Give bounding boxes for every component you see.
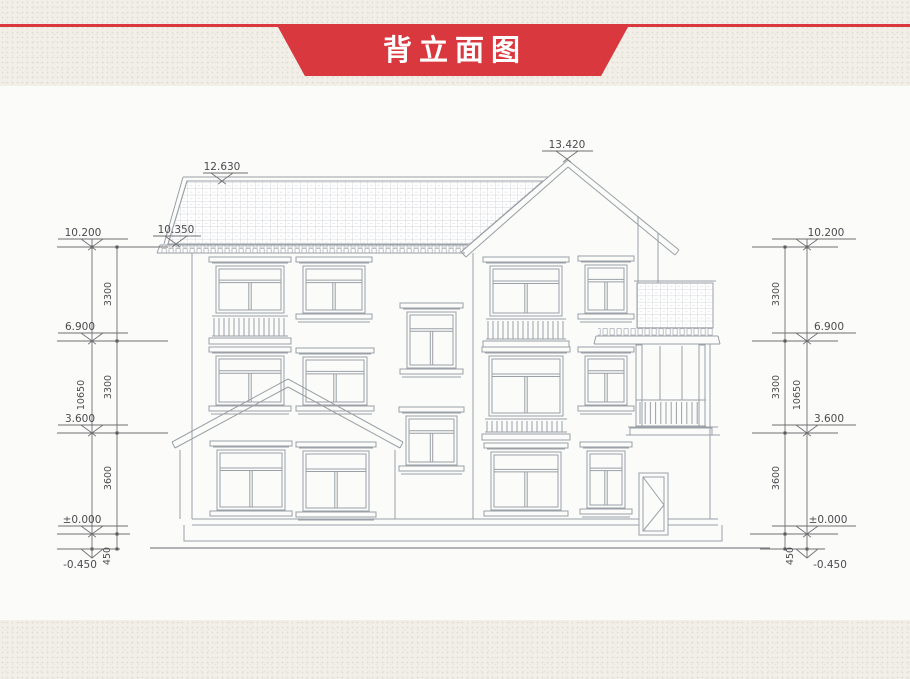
level-label: 6.900: [814, 321, 844, 333]
dimension-value: 3600: [103, 466, 114, 490]
windows-layer: [209, 256, 634, 520]
balcony-post-right: [699, 345, 705, 428]
level-label: ±0.000: [809, 514, 848, 526]
page: { "banner": { "title": "背立面图" }, "colors…: [0, 0, 910, 679]
house-outline: [150, 160, 770, 548]
level-label: 13.420: [549, 139, 586, 151]
window: [400, 303, 463, 377]
level-label: 6.900: [65, 321, 95, 333]
level-label: 12.630: [204, 161, 241, 173]
level-label: ±0.000: [63, 514, 102, 526]
base-bands: [150, 519, 770, 548]
balcony-roof-dentils: [598, 328, 714, 336]
door: [639, 473, 668, 535]
level-label: 3.600: [814, 413, 844, 425]
level-label: 10.350: [158, 224, 195, 236]
dimension-value: 3600: [771, 466, 782, 490]
dimension-value: 10650: [76, 380, 87, 410]
window: [296, 348, 374, 414]
level-marker: -0.450: [63, 549, 103, 571]
balcony: [626, 345, 720, 435]
balcony-slab: [630, 428, 712, 435]
level-label: 3.600: [65, 413, 95, 425]
dimension-value: 3300: [103, 375, 114, 399]
left-tiled-roof: [157, 177, 548, 253]
balcony-post-left: [636, 345, 642, 428]
dimension-value: 3300: [771, 282, 782, 306]
plinth: [184, 525, 722, 541]
level-marker: -0.450: [796, 549, 847, 571]
door-swing-lines: [643, 477, 664, 531]
window: [296, 442, 376, 520]
window: [580, 442, 632, 517]
window: [482, 347, 570, 440]
window: [578, 256, 634, 322]
level-label: -0.450: [63, 559, 97, 571]
dimension-value: 3300: [771, 375, 782, 399]
window: [483, 257, 569, 347]
dimension-value: 450: [785, 547, 796, 565]
window: [210, 441, 292, 519]
dimension-value: 10650: [792, 380, 803, 410]
window: [399, 407, 464, 474]
window: [209, 257, 291, 344]
window: [484, 443, 568, 519]
left-roof-eave-dentils: [160, 245, 466, 252]
dimension-value: 3300: [103, 282, 114, 306]
window: [296, 257, 372, 322]
elevation-drawing: 10.2006.9003.600±0.000-0.45010.2006.9003…: [0, 0, 910, 679]
window: [578, 347, 634, 414]
level-marker: 13.420: [542, 139, 593, 162]
balcony-balusters: [640, 402, 697, 424]
level-label: 10.200: [65, 227, 102, 239]
dimension-value: 450: [102, 547, 113, 565]
window: [209, 347, 291, 414]
level-label: -0.450: [813, 559, 847, 571]
level-label: 10.200: [808, 227, 845, 239]
